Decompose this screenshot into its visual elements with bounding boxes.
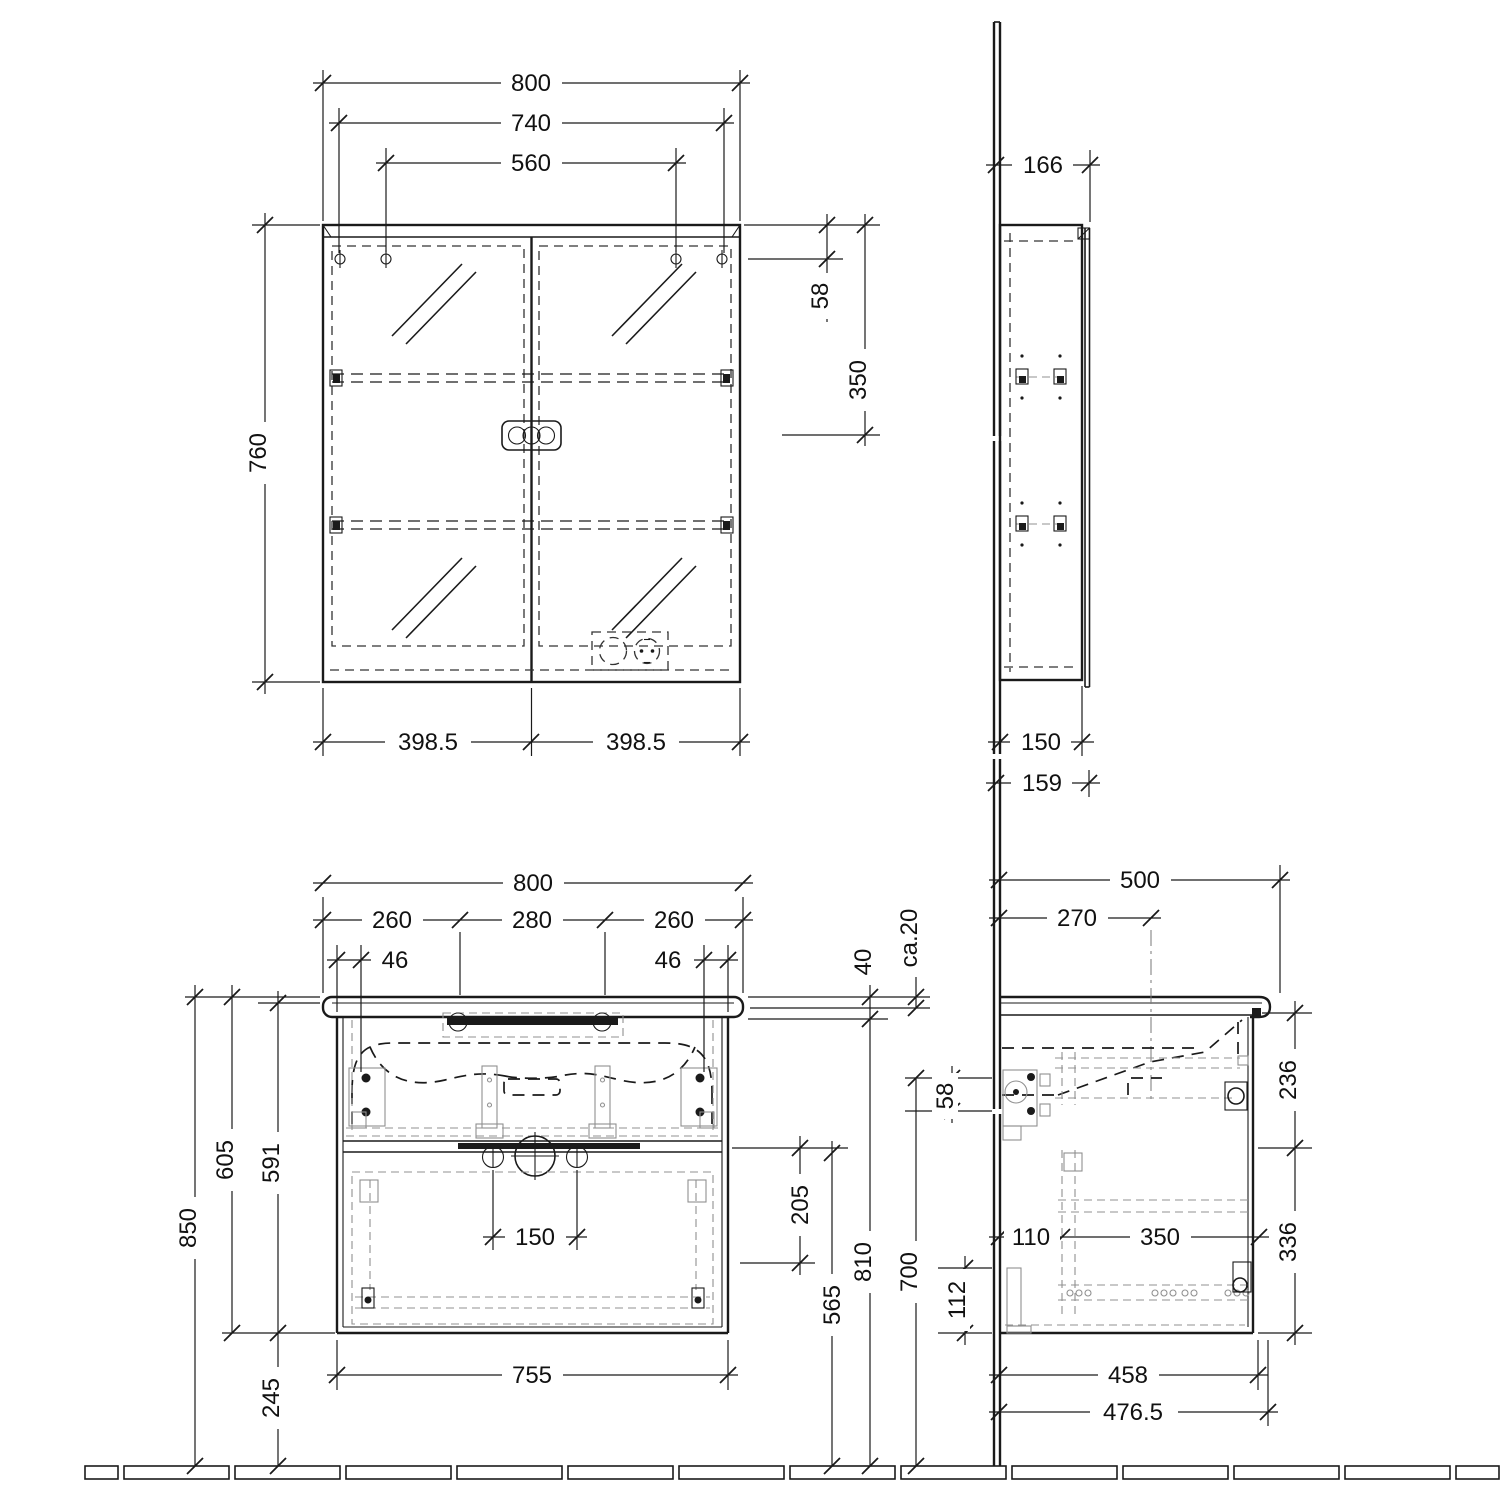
- dim-mf-740: 740: [511, 110, 551, 137]
- dim-vs-110: 110: [1012, 1224, 1050, 1251]
- mirror-cabinet-side-view: [1000, 225, 1090, 687]
- technical-drawing-page: 800 740 560 760 58 350 398.5 398.5: [0, 0, 1500, 1500]
- dim-vs-270: 270: [1057, 905, 1097, 932]
- siphon-cutout: [483, 1132, 588, 1180]
- dim-vf-755: 755: [512, 1362, 552, 1389]
- dim-vs-458: 458: [1108, 1362, 1148, 1389]
- dim-mf-560: 560: [511, 150, 551, 177]
- dim-mf-800: 800: [511, 70, 551, 97]
- side-shelf-brackets: [1016, 354, 1068, 546]
- dim-vf-800: 800: [513, 870, 553, 897]
- mirror-cabinet-front-view: [323, 225, 740, 682]
- dim-vf-260-right: 260: [654, 907, 694, 934]
- dim-vf-40: 40: [850, 949, 877, 976]
- mirror-front-dimensions: 800 740 560 760 58 350 398.5 398.5: [245, 70, 880, 756]
- washbasin-outline: [352, 1043, 712, 1128]
- dim-vs-500: 500: [1120, 867, 1160, 894]
- dim-vf-ca20: ca.20: [896, 909, 923, 968]
- dim-mf-58: 58: [807, 283, 834, 310]
- dim-vf-260-left: 260: [372, 907, 412, 934]
- dim-vf-700: 700: [896, 1252, 923, 1292]
- dim-vf-850: 850: [175, 1208, 202, 1248]
- dim-mf-398-left: 398.5: [398, 729, 458, 756]
- socket-provision: [592, 632, 668, 670]
- dim-vf-565: 565: [819, 1285, 846, 1325]
- dim-vf-58: 58: [932, 1083, 959, 1110]
- dim-vf-810: 810: [850, 1242, 877, 1282]
- dim-vs-4765: 476.5: [1103, 1399, 1163, 1426]
- basin-supports: [476, 1066, 616, 1138]
- dim-vf-245: 245: [258, 1378, 285, 1418]
- dim-vf-205: 205: [787, 1185, 814, 1225]
- dim-mf-760: 760: [245, 433, 272, 473]
- dim-vs-236: 236: [1275, 1060, 1302, 1100]
- dim-ms-150: 150: [1021, 729, 1061, 756]
- dim-vf-591: 591: [258, 1143, 285, 1183]
- dim-vs-112: 112: [944, 1281, 971, 1319]
- dim-vf-46-left: 46: [382, 947, 409, 974]
- dim-mf-350: 350: [845, 360, 872, 400]
- floor-tiles: [85, 1466, 1499, 1479]
- mirror-glyphs: [392, 264, 696, 638]
- side-wall-bracket: [1003, 1070, 1050, 1140]
- drawer-divider: [343, 1141, 722, 1152]
- dim-ms-166: 166: [1023, 152, 1063, 179]
- dim-vs-350: 350: [1140, 1224, 1180, 1251]
- dim-vf-46-right: 46: [655, 947, 682, 974]
- dim-ms-159: 159: [1022, 770, 1062, 797]
- dim-vs-336: 336: [1275, 1222, 1302, 1262]
- vanity-side-view: [999, 930, 1270, 1333]
- vanity-front-dimensions: 800 260 280 260 46 46 850 605 591: [175, 870, 992, 1474]
- dim-vf-605: 605: [212, 1140, 239, 1180]
- dim-mf-398-right: 398.5: [606, 729, 666, 756]
- drawing-canvas: 800 740 560 760 58 350 398.5 398.5: [0, 0, 1500, 1500]
- dim-vf-280: 280: [512, 907, 552, 934]
- vanity-front-view: [323, 997, 743, 1333]
- dim-vf-150: 150: [515, 1224, 555, 1251]
